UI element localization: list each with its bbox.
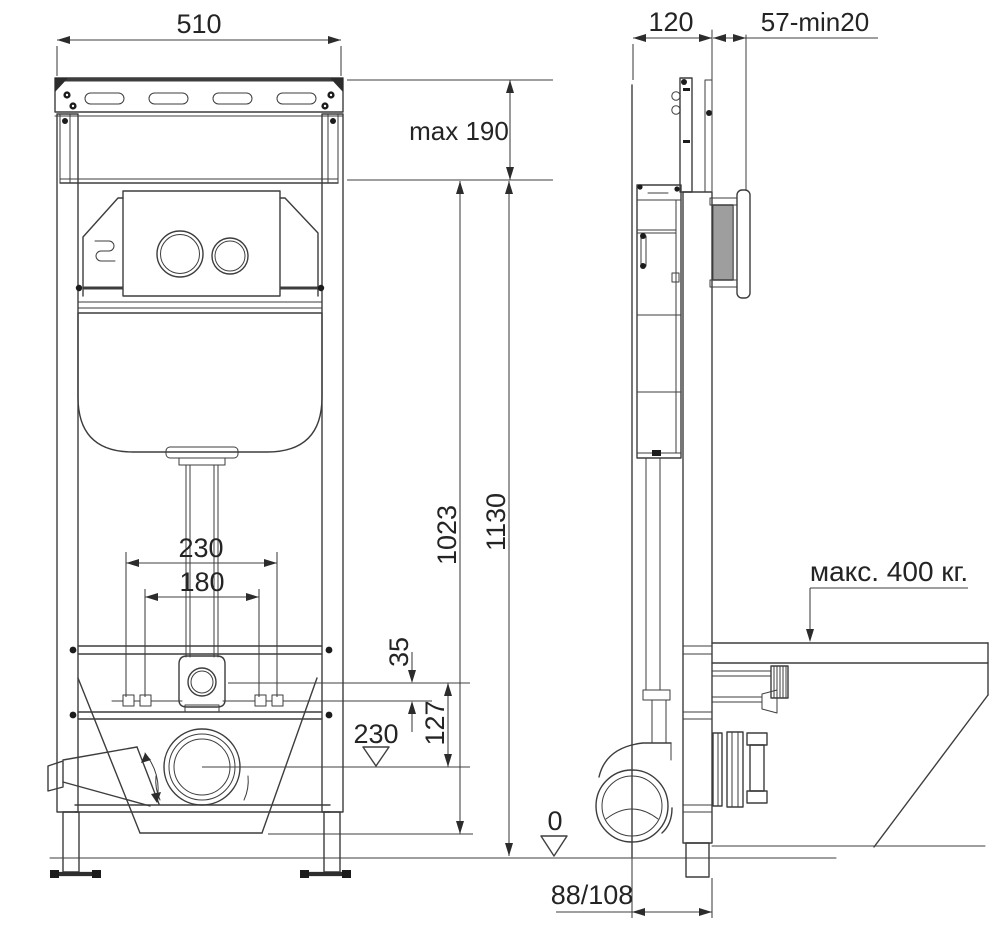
datum-triangle-icon (541, 836, 567, 856)
dim-front-clearance: 57-min20 (713, 7, 878, 42)
drain-level-marker: 230 (353, 719, 398, 766)
level-marker-icon (363, 747, 389, 766)
dim-35-label: 35 (384, 637, 414, 667)
dim-frame-depth: 120 (633, 7, 712, 80)
load-arrow-icon (806, 629, 814, 642)
top-rail-side (672, 78, 712, 192)
flush-bend-housing (179, 656, 225, 712)
dim-510-label: 510 (176, 9, 221, 39)
dim-230-level-label: 230 (353, 719, 398, 749)
installation-frame-drawing: 510 120 57-min20 max 190 (0, 0, 1000, 935)
outlet-connectors (713, 732, 767, 807)
cistern-side (637, 184, 681, 458)
dim-180-label: 180 (179, 567, 224, 597)
dim-top-extension: max 190 (347, 80, 553, 180)
adjustable-feet (50, 812, 351, 878)
dim-120-label: 120 (648, 7, 693, 37)
dim-88-108-label: 88/108 (551, 880, 634, 910)
inlet-elbow (48, 747, 161, 806)
top-mounting-rail (55, 78, 343, 124)
dim-1023-label: 1023 (432, 505, 462, 565)
front-view (48, 78, 351, 878)
floor-line (50, 846, 985, 858)
dim-max190-label: max 190 (409, 116, 509, 146)
cistern-tank (78, 313, 322, 465)
max-load-label: макс. 400 кг. (810, 556, 968, 587)
dim-57min20-label: 57-min20 (761, 7, 869, 37)
floor-datum-marker: 0 (541, 806, 567, 856)
dim-127-label: 127 (420, 700, 450, 745)
max-load-annotation: макс. 400 кг. (806, 556, 968, 642)
frame-post-side (683, 192, 712, 877)
wc-fixing-bolts (112, 695, 295, 706)
dimension-annotations: 510 120 57-min20 max 190 (57, 7, 968, 918)
side-view (596, 30, 988, 877)
dim-230-label: 230 (178, 533, 223, 563)
dim-flush-to-drain: 127 (202, 683, 470, 767)
dim-fixing-span-outer: 230 (126, 533, 277, 697)
flush-actuator (710, 190, 750, 298)
dim-0-label: 0 (547, 806, 562, 836)
dim-fixing-span-inner: 180 (145, 567, 259, 697)
dim-1130-label: 1130 (481, 493, 511, 551)
rail-corner-bolts-icon (62, 91, 336, 124)
technical-drawing-page: 510 120 57-min20 max 190 (0, 0, 1000, 935)
dim-total-height: 1130 (481, 181, 513, 856)
flush-plate-side (737, 190, 750, 298)
panel-brackets (76, 198, 324, 308)
mounting-studs (712, 666, 788, 713)
flush-pipe-side (643, 458, 670, 743)
drain-elbow (596, 743, 672, 842)
flush-plate-panel (123, 191, 280, 296)
dim-frame-width: 510 (57, 9, 341, 76)
